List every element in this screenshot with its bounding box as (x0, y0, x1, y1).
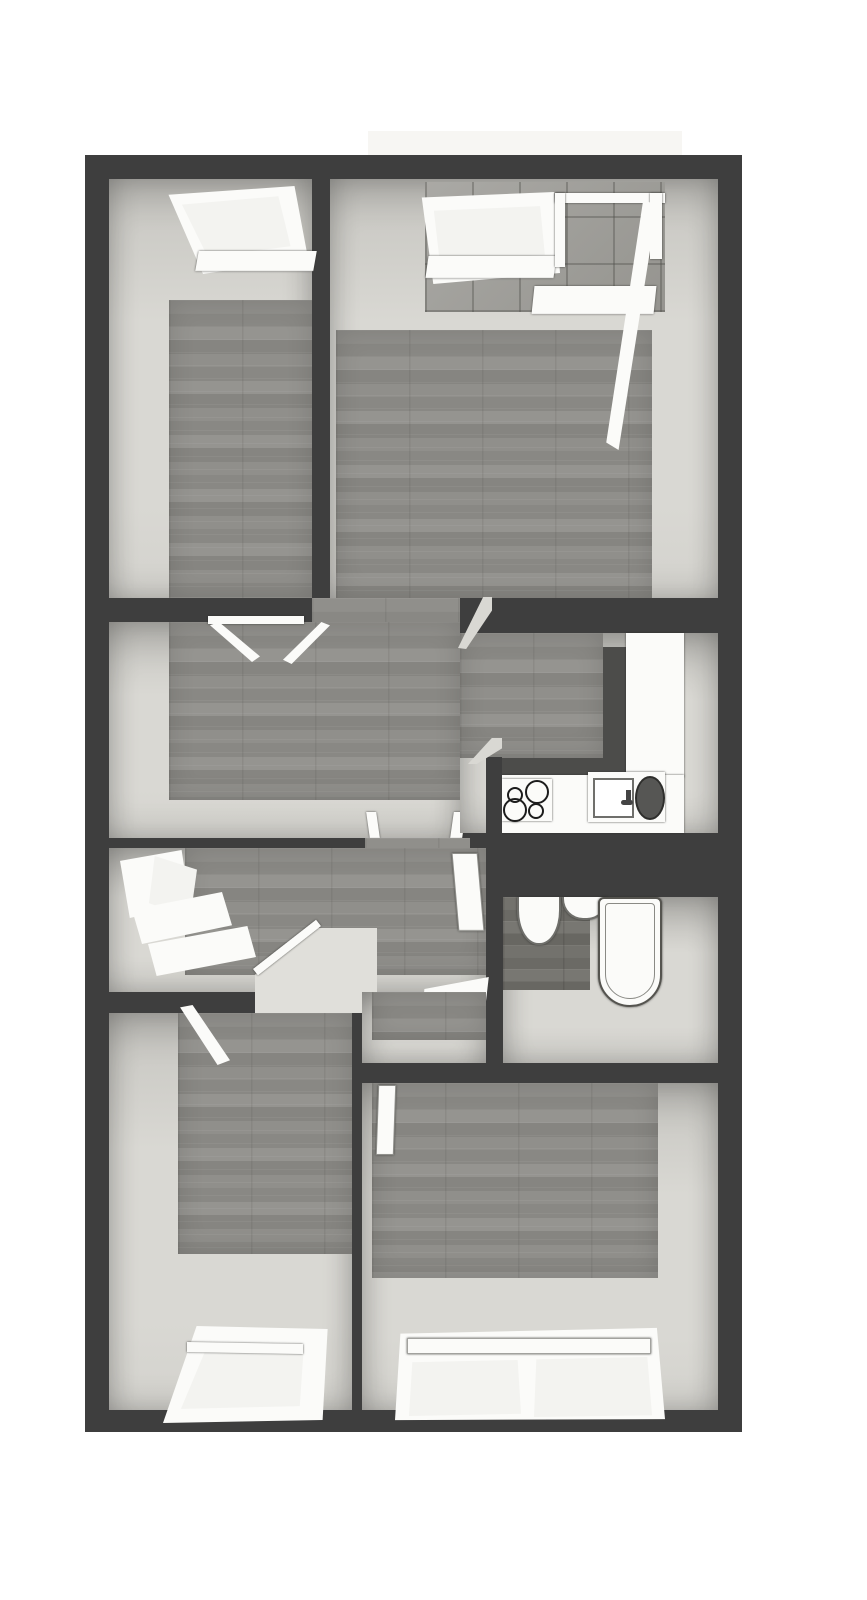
floor-wood (460, 633, 603, 758)
burner-large-2 (503, 798, 527, 822)
floor-wood (336, 330, 652, 598)
room-bedroom-bottom-right (362, 1083, 718, 1410)
open-door-leaf (376, 1085, 396, 1155)
double-window-head-band (407, 1338, 651, 1354)
window-sill (425, 256, 556, 278)
bathtub (598, 897, 662, 1007)
floor-wood (372, 992, 486, 1040)
window-sash-bar (187, 1342, 303, 1354)
balcony-door-jamb-left (555, 193, 565, 267)
bathtub-inner-rim (605, 903, 655, 999)
room-hallway (109, 622, 460, 838)
balcony-door-head (555, 193, 665, 203)
cooktop (502, 779, 552, 821)
counter-front-vertical (603, 647, 626, 775)
counter-top-vertical (626, 633, 684, 777)
sink-drainboard (635, 776, 665, 820)
floor-plan-canvas (0, 0, 867, 1600)
room-bathroom (503, 897, 718, 1063)
double-window-pane-left (409, 1360, 521, 1416)
room-bedroom-top-left (109, 179, 312, 598)
passage-living-hall (312, 598, 460, 622)
room-bedroom-bottom-left (109, 1013, 352, 1410)
floor-wood (178, 1013, 352, 1254)
floor-wood (372, 1083, 658, 1278)
burner-small-2 (528, 803, 544, 819)
door-lintel (208, 616, 304, 624)
balcony-slab (368, 131, 682, 157)
doorframe-post-left (366, 812, 380, 838)
kitchen-stub-wall (486, 757, 502, 848)
double-window-pane-right (534, 1357, 652, 1417)
corridor-stub (362, 992, 486, 1063)
doorway-hall-lowerhall (365, 838, 470, 848)
sink-unit (588, 772, 665, 822)
burner-large-1 (525, 780, 549, 804)
sink-faucet-spout (621, 800, 633, 805)
window-pane (428, 205, 546, 263)
floor-wood (169, 300, 312, 598)
room-living (330, 179, 718, 598)
window-sill (195, 251, 317, 271)
floor-wood (169, 622, 460, 800)
